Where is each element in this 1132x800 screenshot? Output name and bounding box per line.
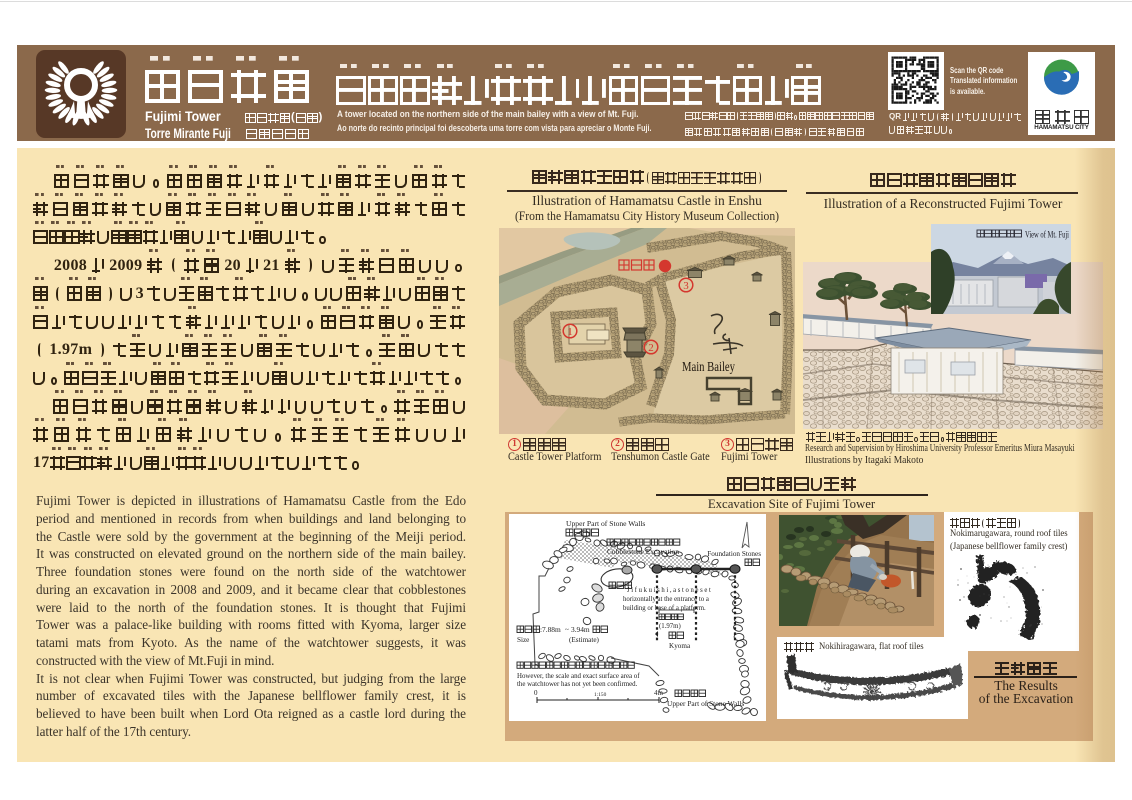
svg-text:Size: Size — [517, 636, 529, 644]
svg-text:View of Mt. Fuji: View of Mt. Fuji — [1025, 230, 1069, 241]
svg-text:(1.97m): (1.97m) — [659, 623, 681, 630]
svg-text:Cobblestone Excavation: Cobblestone Excavation — [607, 547, 679, 556]
svg-text:3: 3 — [683, 280, 689, 292]
svg-text:J i f u k u i s h i , a s: J i f u k u i s h i , a s t o n e s e t — [627, 587, 711, 594]
svg-text:~: ~ — [565, 626, 569, 634]
svg-text::7.88m: :7.88m — [540, 625, 561, 634]
svg-text:4m: 4m — [654, 689, 664, 697]
svg-text:the watchtower has not yet bee: the watchtower has not yet been confirme… — [517, 681, 638, 688]
svg-text:(Estimate): (Estimate) — [569, 636, 600, 644]
svg-text:3.94m: 3.94m — [571, 625, 590, 634]
svg-text:Upper Part of Stone Walls: Upper Part of Stone Walls — [667, 699, 744, 708]
svg-text:Foundation Stones: Foundation Stones — [707, 550, 761, 558]
svg-text:However, the scale and exact s: However, the scale and exact surface are… — [517, 673, 640, 680]
svg-text:1:150: 1:150 — [594, 692, 607, 698]
svg-text:horizontally at the entrance t: horizontally at the entrance to a — [623, 596, 709, 603]
svg-text:Main Bailey: Main Bailey — [682, 359, 735, 374]
svg-text:1: 1 — [567, 326, 573, 338]
svg-text:Upper Part of Stone Walls: Upper Part of Stone Walls — [566, 519, 645, 528]
svg-text:0: 0 — [534, 689, 538, 697]
svg-text:Kyoma: Kyoma — [669, 642, 691, 650]
svg-text:building or base of a platform: building or base of a platform. — [623, 605, 706, 612]
svg-text:2: 2 — [648, 342, 654, 354]
